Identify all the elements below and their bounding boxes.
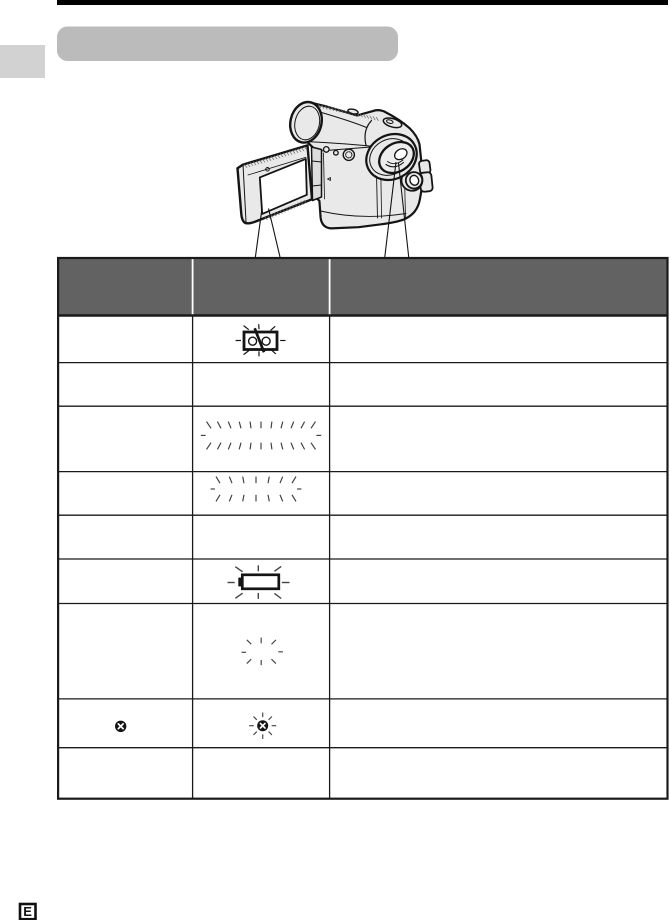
svg-text:E: E — [23, 904, 32, 919]
